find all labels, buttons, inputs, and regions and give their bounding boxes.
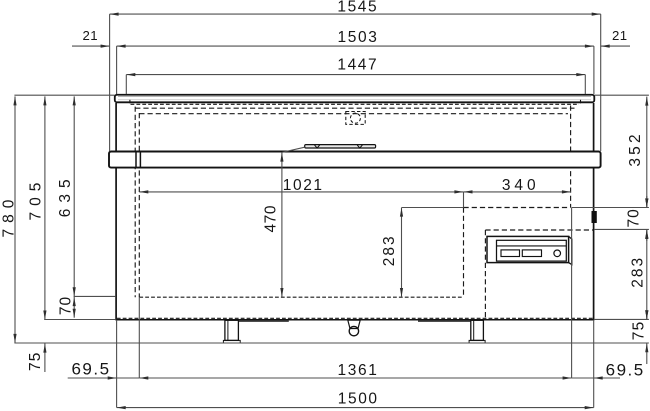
svg-text:69.5: 69.5 xyxy=(606,361,645,380)
svg-text:1500: 1500 xyxy=(338,390,379,407)
svg-text:340: 340 xyxy=(502,177,540,194)
svg-text:1545: 1545 xyxy=(337,0,378,15)
svg-text:70: 70 xyxy=(57,296,74,315)
svg-text:705: 705 xyxy=(27,177,44,221)
svg-text:21: 21 xyxy=(82,28,98,43)
svg-text:352: 352 xyxy=(627,131,644,166)
svg-text:1021: 1021 xyxy=(283,177,324,194)
svg-text:21: 21 xyxy=(612,28,628,43)
svg-text:1361: 1361 xyxy=(338,362,379,379)
svg-text:75: 75 xyxy=(631,321,648,341)
svg-text:780: 780 xyxy=(0,194,17,238)
svg-text:1447: 1447 xyxy=(337,56,378,73)
svg-text:69.5: 69.5 xyxy=(71,360,110,379)
svg-text:635: 635 xyxy=(57,173,74,217)
svg-text:470: 470 xyxy=(262,205,279,233)
svg-text:75: 75 xyxy=(27,351,44,371)
svg-text:283: 283 xyxy=(629,256,646,288)
svg-text:1503: 1503 xyxy=(338,29,379,46)
svg-text:70: 70 xyxy=(625,208,642,227)
svg-text:283: 283 xyxy=(381,234,398,266)
